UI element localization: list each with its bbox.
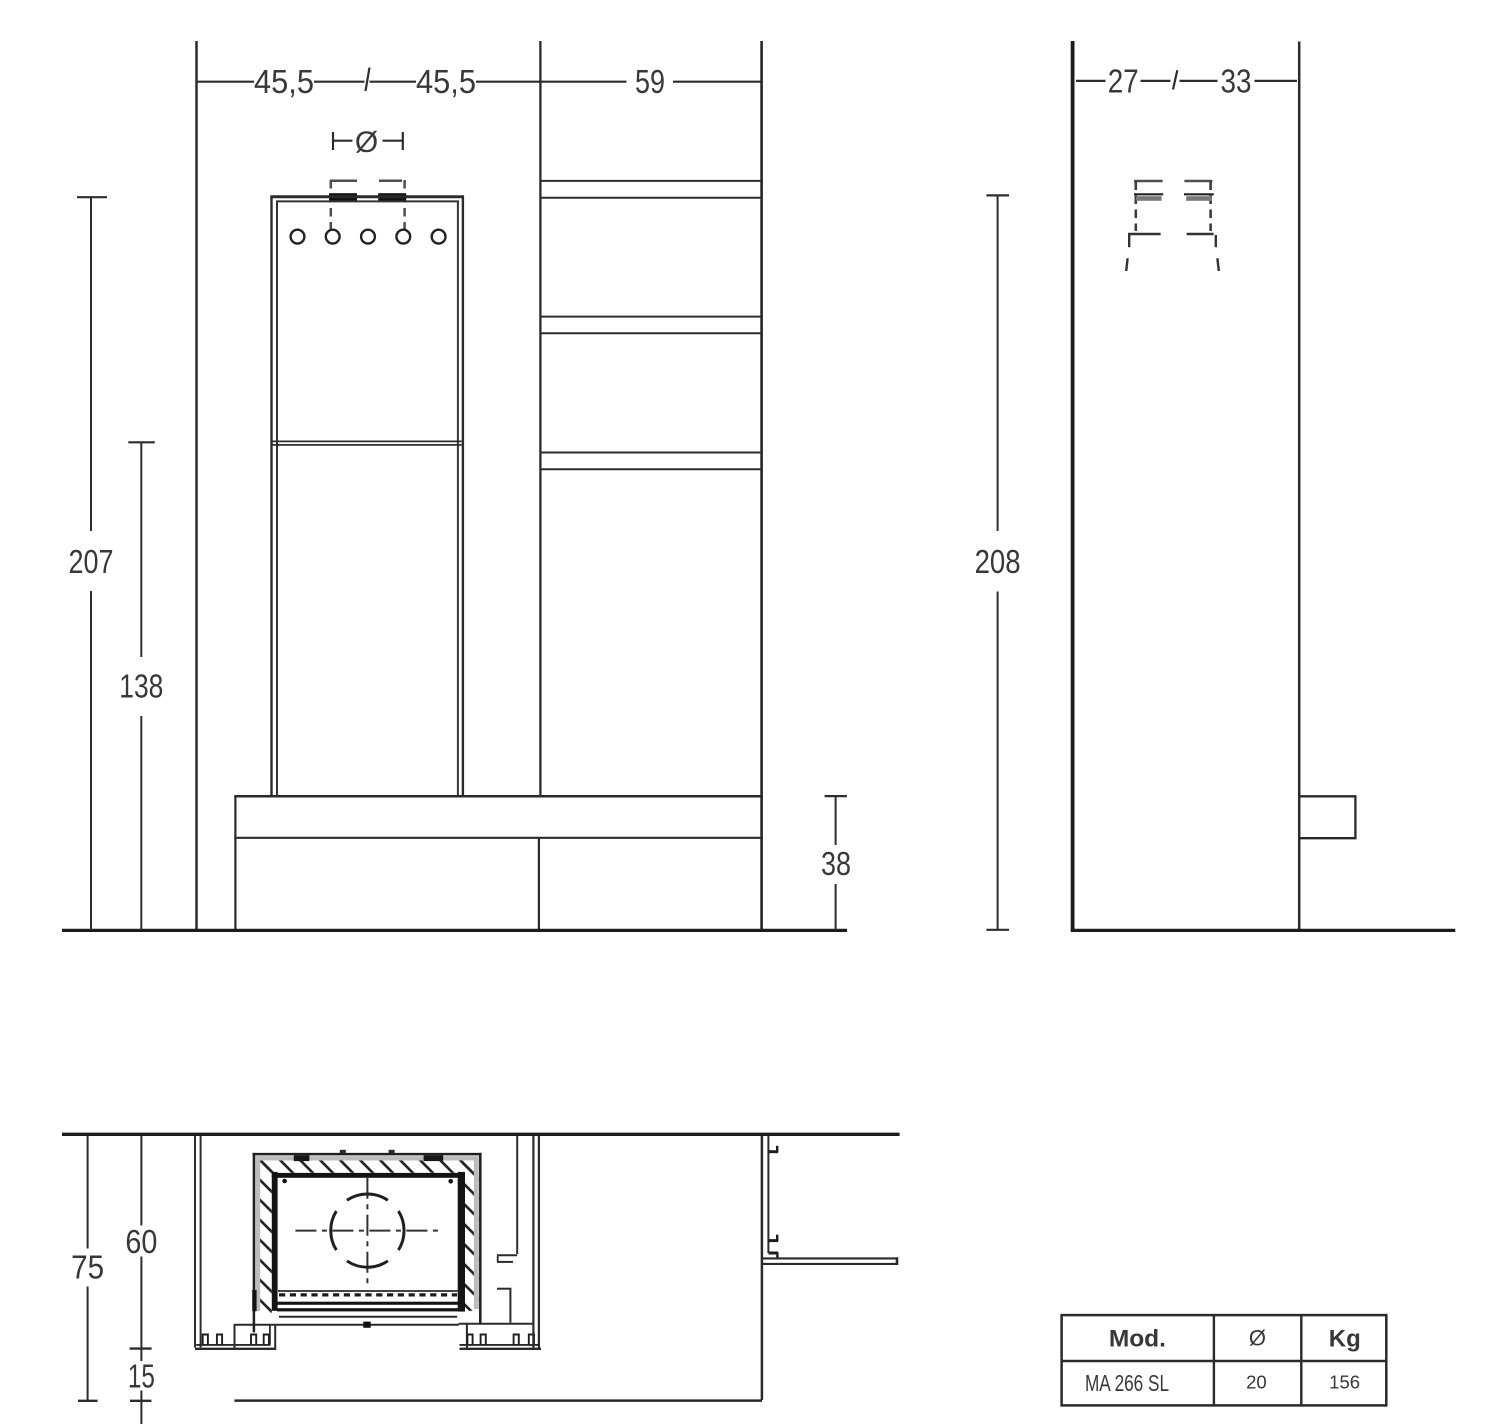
svg-text:Mod.: Mod. bbox=[1109, 1326, 1166, 1353]
svg-text:207: 207 bbox=[69, 543, 114, 580]
svg-text:Kg: Kg bbox=[1329, 1326, 1361, 1353]
svg-text:156: 156 bbox=[1329, 1372, 1360, 1393]
svg-text:Ø: Ø bbox=[1249, 1326, 1266, 1351]
svg-text:27: 27 bbox=[1108, 63, 1139, 100]
svg-text:38: 38 bbox=[821, 845, 851, 882]
svg-text:20: 20 bbox=[1246, 1372, 1267, 1393]
svg-text:75: 75 bbox=[71, 1249, 104, 1286]
svg-text:15: 15 bbox=[128, 1357, 155, 1394]
svg-text:Ø: Ø bbox=[355, 126, 378, 159]
svg-text:MA 266 SL: MA 266 SL bbox=[1085, 1370, 1169, 1396]
svg-text:33: 33 bbox=[1221, 63, 1252, 100]
svg-text:138: 138 bbox=[119, 668, 163, 705]
svg-text:45,5: 45,5 bbox=[416, 63, 476, 100]
svg-text:60: 60 bbox=[125, 1223, 157, 1260]
svg-text:45,5: 45,5 bbox=[254, 63, 314, 100]
svg-text:208: 208 bbox=[975, 543, 1021, 580]
svg-text:59: 59 bbox=[635, 63, 665, 100]
